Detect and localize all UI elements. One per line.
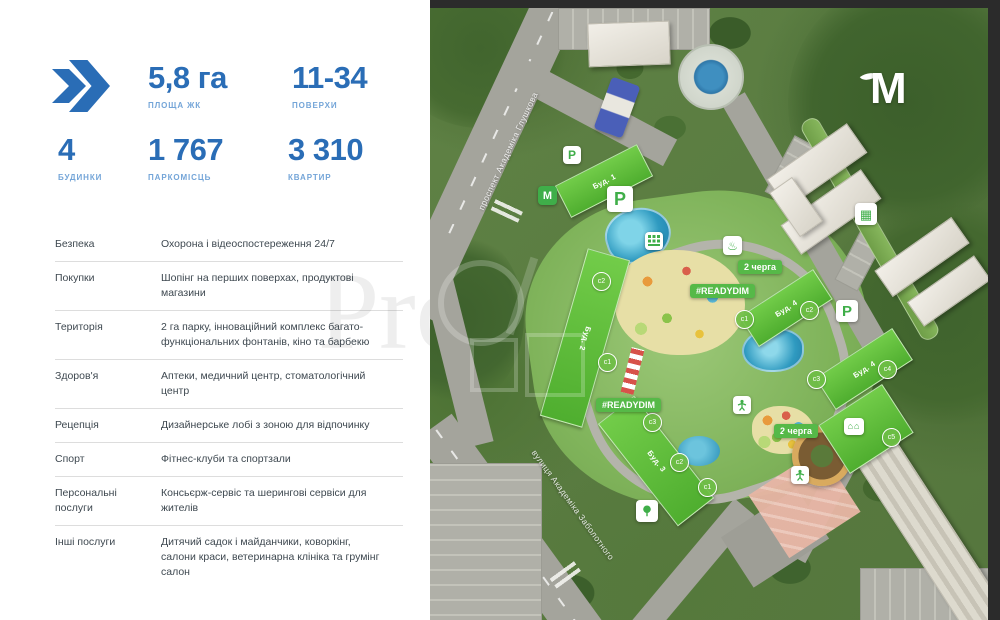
masterplan-map: Буд. 1 Буд. 2 Буд. 3 Буд. 4 Буд. 4 с2 с1… xyxy=(430,8,988,620)
feature-row: Інші послуги Дитячий садок і майданчики,… xyxy=(55,526,403,589)
playground-area xyxy=(615,250,745,355)
stat-value: 5,8 га xyxy=(148,62,227,94)
feature-label: Покупки xyxy=(55,271,161,301)
tree-icon xyxy=(636,500,658,522)
section-badge: с2 xyxy=(800,301,819,320)
section-badge: с2 xyxy=(592,272,611,291)
stat-floors: 11-34 ПОВЕРХИ xyxy=(292,62,367,110)
feature-text: Дизайнерське лобі з зоною для відпочинку xyxy=(161,418,383,433)
building-label: Буд. 3 xyxy=(645,448,667,473)
stat-value: 11-34 xyxy=(292,62,367,94)
feature-row: Покупки Шопінг на перших поверхах, проду… xyxy=(55,262,403,311)
feature-label: Здоров'я xyxy=(55,369,161,399)
stat-label: ПЛОЩА ЖК xyxy=(148,101,227,110)
grid-icon xyxy=(648,235,660,247)
feature-label: Персональні послуги xyxy=(55,486,161,516)
bbq-icon: ♨ xyxy=(723,236,742,255)
feature-row: Територія 2 га парку, інноваційний компл… xyxy=(55,311,403,360)
section-badge: с1 xyxy=(698,478,717,497)
presentation-page: 5,8 га ПЛОЩА ЖК 11-34 ПОВЕРХИ 4 БУДИНКИ … xyxy=(0,0,1000,620)
feature-row: Здоров'я Аптеки, медичний центр, стомато… xyxy=(55,360,403,409)
parking-badge: P xyxy=(563,146,581,164)
person-glyph xyxy=(736,399,748,411)
feature-label: Безпека xyxy=(55,237,161,252)
brand-letter: M xyxy=(870,64,907,114)
section-badge: с4 xyxy=(878,360,897,379)
parking-badge: P xyxy=(836,300,858,322)
feature-text: 2 га парку, інноваційний комплекс багато… xyxy=(161,320,383,350)
feature-label: Спорт xyxy=(55,452,161,467)
stat-value: 4 xyxy=(58,134,102,166)
feature-row: Спорт Фітнес-клуби та спортзали xyxy=(55,443,403,477)
building-label: Буд. 2 xyxy=(577,325,592,351)
building-label: Буд. 4 xyxy=(773,297,799,318)
metro-badge: M xyxy=(538,186,557,205)
person-icon xyxy=(791,466,809,484)
parking-lot xyxy=(430,463,542,620)
ready-tag: #READYDIM xyxy=(596,398,661,412)
phase2-tag: 2 черга xyxy=(774,424,818,438)
person-icon xyxy=(733,396,751,414)
section-badge: с3 xyxy=(807,370,826,389)
chevron-shape xyxy=(52,69,86,103)
section-badge: с5 xyxy=(882,428,901,447)
stat-apartments: 3 310 КВАРТИР xyxy=(288,134,363,182)
feature-text: Аптеки, медичний центр, стоматологічний … xyxy=(161,369,383,399)
feature-row: Безпека Охорона і відеоспостереження 24/… xyxy=(55,228,403,262)
houses-icon: ⌂⌂ xyxy=(844,418,864,435)
section-badge: с1 xyxy=(598,353,617,372)
stat-label: КВАРТИР xyxy=(288,173,363,182)
stat-label: ПОВЕРХИ xyxy=(292,101,367,110)
buildings-icon: ▦ xyxy=(855,203,877,225)
section-badge: с3 xyxy=(643,413,662,432)
brand-chevron-logo-icon xyxy=(52,60,110,112)
feature-row: Персональні послуги Консьєрж-сервіс та ш… xyxy=(55,477,403,526)
feature-label: Територія xyxy=(55,320,161,350)
stat-label: БУДИНКИ xyxy=(58,173,102,182)
stat-parking: 1 767 ПАРКОМІСЦЬ xyxy=(148,134,223,182)
info-panel: 5,8 га ПЛОЩА ЖК 11-34 ПОВЕРХИ 4 БУДИНКИ … xyxy=(0,0,430,620)
feature-text: Консьєрж-сервіс та шерингові сервіси для… xyxy=(161,486,383,516)
stat-value: 3 310 xyxy=(288,134,363,166)
feature-text: Шопінг на перших поверхах, продуктові ма… xyxy=(161,271,383,301)
shops-icon xyxy=(645,232,663,250)
stat-label: ПАРКОМІСЦЬ xyxy=(148,173,223,182)
section-badge: с2 xyxy=(670,453,689,472)
feature-row: Рецепція Дизайнерське лобі з зоною для в… xyxy=(55,409,403,443)
feature-text: Охорона і відеоспостереження 24/7 xyxy=(161,237,383,252)
feature-label: Рецепція xyxy=(55,418,161,433)
stat-houses: 4 БУДИНКИ xyxy=(58,134,102,182)
feature-table: Безпека Охорона і відеоспостереження 24/… xyxy=(55,228,403,589)
stat-value: 1 767 xyxy=(148,134,223,166)
feature-text: Фітнес-клуби та спортзали xyxy=(161,452,383,467)
tree-glyph xyxy=(640,504,654,518)
fountain-plaza xyxy=(678,44,744,110)
stat-area: 5,8 га ПЛОЩА ЖК xyxy=(148,62,227,110)
phase2-tag: 2 черга xyxy=(738,260,782,274)
existing-building xyxy=(587,21,670,68)
section-badge: с1 xyxy=(735,310,754,329)
ready-tag: #READYDIM xyxy=(690,284,755,298)
building-label: Буд. 4 xyxy=(851,358,877,379)
feature-label: Інші послуги xyxy=(55,535,161,580)
person-glyph xyxy=(794,469,806,481)
parking-badge: P xyxy=(607,186,633,212)
feature-text: Дитячий садок і майданчики, коворкінг, с… xyxy=(161,535,383,580)
